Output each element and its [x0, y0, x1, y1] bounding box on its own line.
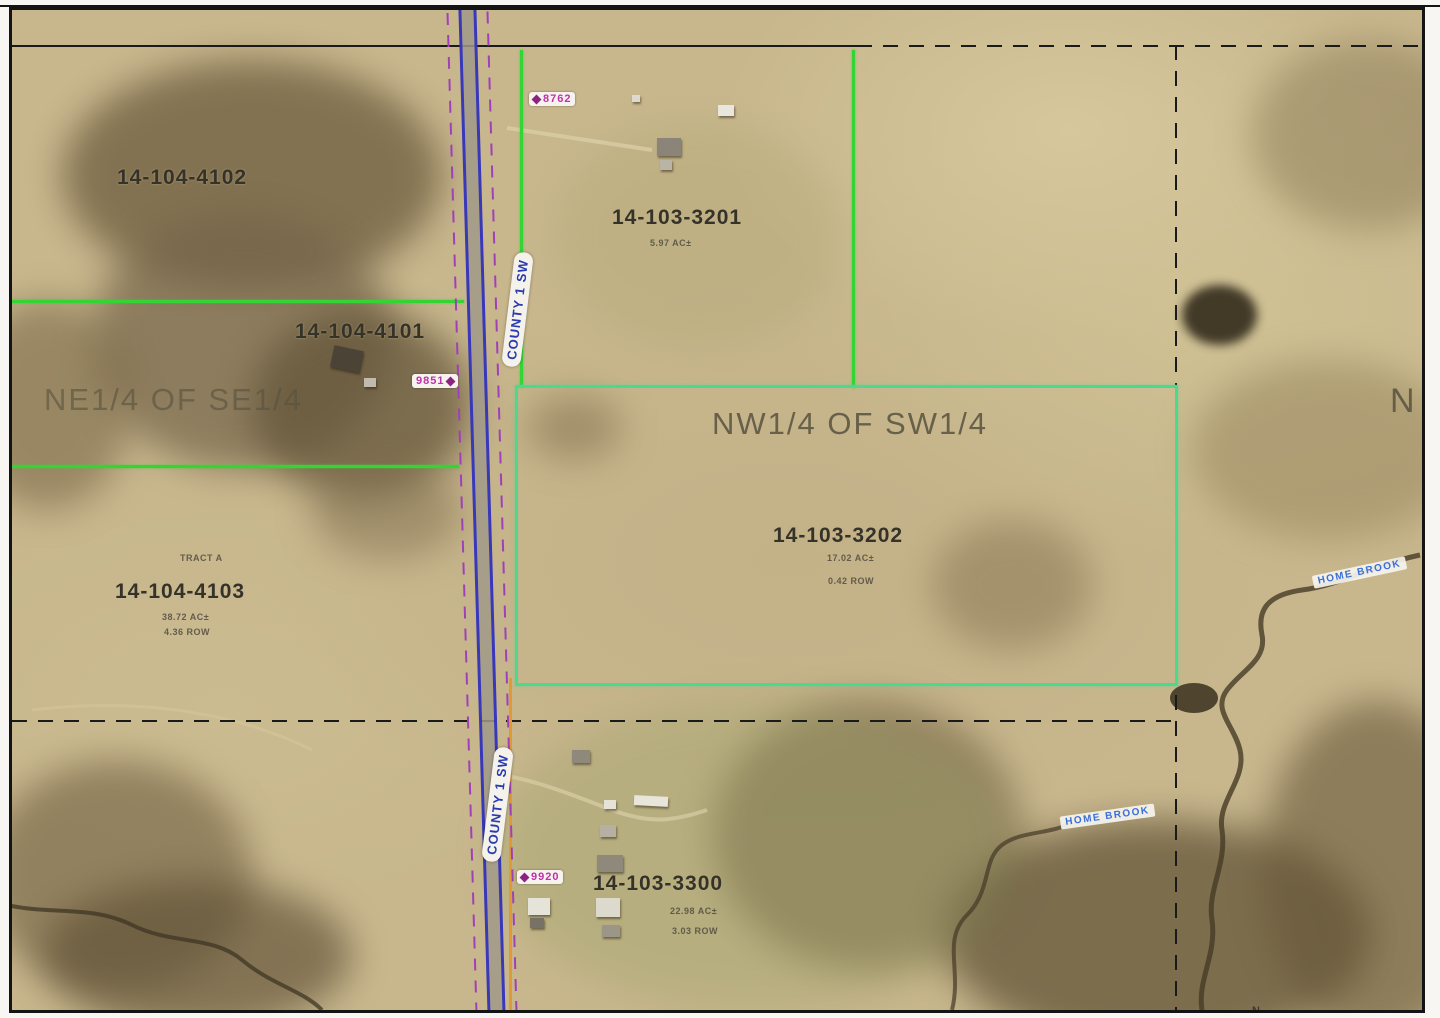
- parcel-id-label: 14-104-4101: [295, 320, 425, 344]
- quarter-section-label: NE1/4 OF SE1/4: [44, 382, 303, 418]
- stream-path: [1201, 555, 1420, 1010]
- parcel-acreage-label: 38.72 AC±: [162, 612, 209, 622]
- address-number: 8762: [543, 93, 571, 105]
- north-indicator: N: [1252, 1005, 1260, 1013]
- address-number: 9851: [416, 375, 444, 387]
- parcel-row-label: 0.42 ROW: [828, 576, 874, 586]
- address-marker: 9920: [517, 870, 563, 884]
- stream-path: [952, 822, 1072, 1010]
- section-line-dashed: [12, 720, 1175, 722]
- stream-path: [12, 905, 322, 1010]
- road-pavement: [461, 7, 503, 1013]
- green-boundary-line: [852, 50, 855, 388]
- parcel-row-label: 3.03 ROW: [672, 926, 718, 936]
- quarter-section-label-partial: N: [1390, 382, 1417, 421]
- stream-pond: [1170, 683, 1218, 713]
- quarter-section-label: NW1/4 OF SW1/4: [712, 406, 988, 442]
- parcel-acreage-label: 5.97 AC±: [650, 238, 692, 248]
- parcel-id-label: 14-104-4102: [117, 166, 247, 190]
- address-marker-icon: [520, 872, 530, 882]
- farm-track: [502, 775, 707, 819]
- parcel-id-label: 14-103-3201: [612, 206, 742, 230]
- green-boundary-line: [12, 465, 459, 468]
- building: [657, 138, 681, 156]
- building: [632, 95, 640, 102]
- building: [604, 800, 616, 809]
- building: [597, 855, 623, 872]
- parcel-id-label: 14-104-4103: [115, 580, 245, 604]
- parcel-id-label: 14-103-3202: [773, 524, 903, 548]
- building: [364, 378, 376, 387]
- parcel-id-label: 14-103-3300: [593, 872, 723, 896]
- building: [660, 160, 672, 170]
- building: [634, 795, 668, 807]
- parcel-row-label: 4.36 ROW: [164, 627, 210, 637]
- building: [600, 825, 616, 837]
- section-line-dashed: [857, 45, 1422, 47]
- parcel-tract-label: TRACT A: [180, 553, 223, 563]
- address-marker-icon: [446, 376, 456, 386]
- building: [596, 898, 620, 917]
- parcel-acreage-label: 17.02 AC±: [827, 553, 874, 563]
- farm-track: [507, 128, 652, 150]
- address-number: 9920: [531, 871, 559, 883]
- building: [602, 925, 620, 937]
- building: [718, 105, 734, 116]
- building: [572, 750, 590, 763]
- aerial-map: COUNTY 1 SW COUNTY 1 SW 8762 9851 9920 1…: [9, 7, 1425, 1013]
- address-marker: 9851: [412, 374, 458, 388]
- address-marker-icon: [532, 94, 542, 104]
- address-marker: 8762: [529, 92, 575, 106]
- farm-track: [32, 706, 312, 750]
- green-boundary-line: [12, 300, 464, 303]
- parcel-acreage-label: 22.98 AC±: [670, 906, 717, 916]
